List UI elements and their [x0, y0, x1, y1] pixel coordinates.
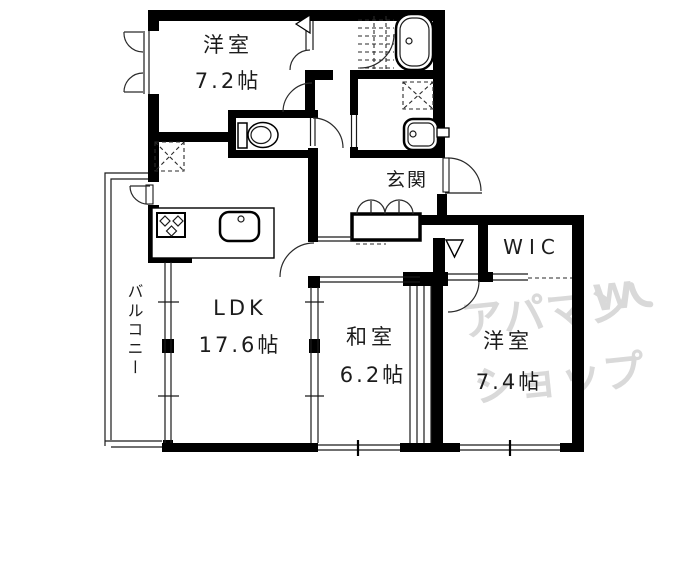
entrance-door-leaf — [443, 158, 449, 192]
watermark-logo-w: W — [591, 275, 635, 320]
room-label-balcony: バルコニー — [125, 283, 144, 378]
bathtub — [396, 14, 433, 70]
floor-plan: アパマン ショップ W — [0, 0, 690, 575]
room-size-washitsu: 6.2帖 — [340, 363, 406, 387]
room-label-ldk: LDK — [213, 296, 267, 320]
room-size-ldk: 17.6帖 — [199, 333, 282, 357]
washbasin-handle — [437, 128, 449, 137]
room-label-bedroom1: 洋室 — [203, 33, 253, 57]
room-size-bedroom2: 7.4帖 — [476, 370, 542, 394]
room-size-bedroom1: 7.2帖 — [195, 69, 261, 93]
room-label-bedroom2: 洋室 — [483, 329, 533, 353]
toilet-tank — [238, 123, 247, 148]
room-label-entrance: 玄関 — [386, 169, 428, 191]
room-label-washitsu: 和室 — [346, 325, 396, 349]
washbasin — [404, 119, 438, 150]
stove — [157, 213, 185, 237]
room-label-wic: WIC — [503, 235, 561, 259]
floor-plan-page: アパマン ショップ W — [0, 0, 690, 575]
